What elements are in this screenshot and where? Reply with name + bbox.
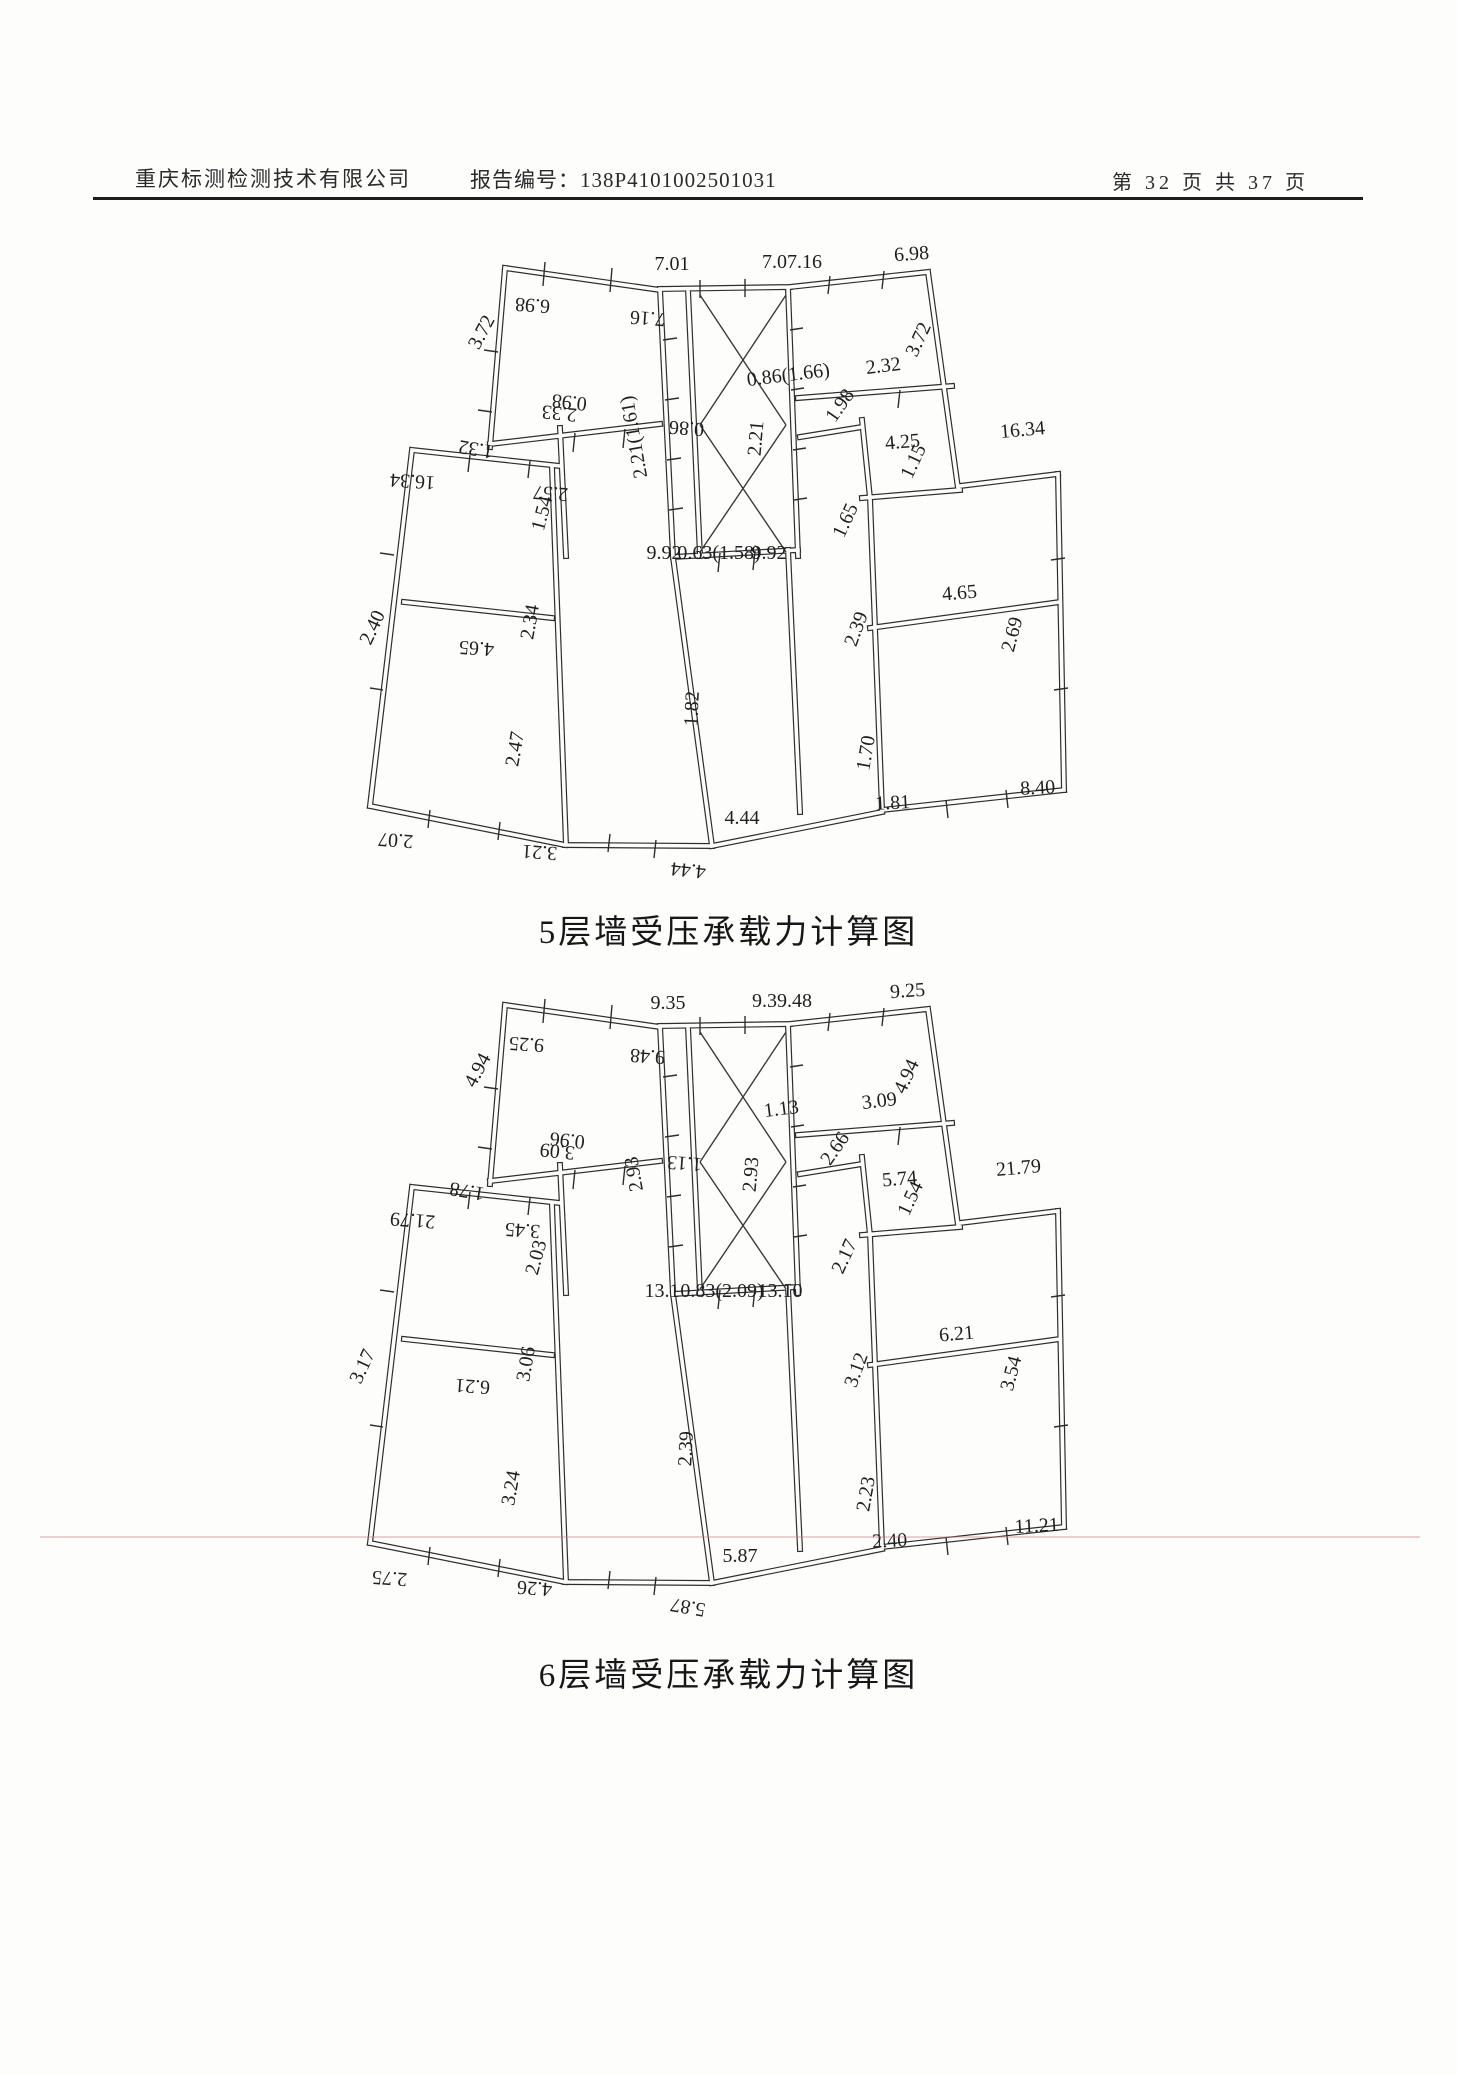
dim-label: 13.10	[758, 1280, 803, 1302]
dim-label: 7.16	[629, 306, 665, 330]
dim-label: 2.07	[377, 828, 413, 852]
x-brace-lines	[700, 295, 786, 552]
dim-label: 2.39	[674, 1431, 698, 1467]
dim-label: 9.25	[889, 979, 925, 1003]
dim-label: 5.87	[723, 1545, 758, 1567]
dim-label: 0.98	[551, 389, 588, 415]
dim-label: 3.45	[504, 1218, 540, 1242]
dim-label: 3.24	[497, 1469, 525, 1507]
dim-label: 6.21	[454, 1374, 490, 1398]
dim-label: 8.40	[1020, 776, 1056, 800]
dim-label: 1.65	[828, 500, 863, 541]
dim-label: 1.81	[875, 791, 911, 815]
dim-label: 3.54	[996, 1354, 1026, 1394]
dim-label: 2.69	[997, 615, 1027, 655]
figure-caption-5f: 5层墙受压承载力计算图	[0, 905, 1457, 953]
dim-label: 2.17	[827, 1236, 862, 1277]
dim-label: 1.70	[852, 734, 880, 772]
dim-label: 9.35	[651, 992, 686, 1014]
dim-label: 1.78	[448, 1177, 486, 1205]
dim-label: 9.48	[629, 1044, 665, 1068]
dim-label: 3.12	[840, 1350, 873, 1390]
floor-plans-canvas: 7.01 7.07.16 6.98 6.98 3.72 7.16 2.33 0.…	[0, 0, 1457, 2075]
dim-label: 16.34	[999, 417, 1046, 443]
dim-label: 1.82	[680, 691, 704, 727]
dim-label: 0.83(2.09)	[680, 1280, 763, 1302]
dim-label: 9.92	[752, 542, 787, 564]
dim-label: 9.92	[647, 542, 682, 564]
dim-label: 16.34	[389, 468, 435, 493]
dim-label: 0.86	[668, 416, 704, 440]
dim-label: 3.21	[521, 840, 557, 864]
figure-caption-6f: 6层墙受压承载力计算图	[0, 1648, 1457, 1696]
dim-label: 3.06	[512, 1345, 540, 1383]
dim-label: 2.47	[501, 730, 529, 768]
dim-label: 4.94	[889, 1056, 924, 1097]
dim-label: 9.39.48	[752, 990, 812, 1012]
dim-label: 7.07.16	[762, 251, 822, 273]
dim-label: 0.96	[549, 1127, 586, 1153]
dim-label: 4.44	[670, 857, 707, 883]
dim-label: 4.65	[941, 581, 978, 606]
dim-label: 4.26	[516, 1576, 552, 1600]
dim-label: 9.25	[508, 1032, 544, 1056]
dim-label: 2.40	[872, 1529, 908, 1553]
dim-label: 3.17	[345, 1346, 380, 1387]
dim-label: 4.65	[458, 636, 494, 660]
dim-label: 4.44	[725, 807, 760, 829]
document-page: 重庆标测检测技术有限公司 报告编号：138P4101002501031 第 32…	[0, 0, 1457, 2075]
dim-label: 2.03	[521, 1238, 551, 1278]
dim-label: 2.93	[739, 1156, 764, 1193]
dim-label: 13.1	[645, 1280, 680, 1302]
dim-label: 2.34	[516, 603, 544, 641]
dim-label: 1.13	[666, 1151, 702, 1175]
dim-label: 1.13	[763, 1096, 800, 1122]
dim-label: 0.63(1.58)	[677, 542, 760, 564]
dim-label: 5.87	[669, 1593, 707, 1621]
dim-label: 2.40	[355, 607, 390, 648]
dim-label: 7.01	[655, 253, 690, 275]
dim-label: 21.79	[995, 1155, 1042, 1181]
dim-label: 3.72	[901, 319, 936, 360]
dim-label: 0.86(1.66)	[746, 359, 831, 391]
dim-label: 21.79	[389, 1207, 435, 1232]
dim-label: 2.21(1.61)	[616, 394, 652, 480]
dim-label: 3.72	[464, 312, 500, 353]
dim-label: 2.75	[371, 1566, 407, 1590]
dim-label: 2.21	[744, 420, 769, 457]
dim-label: 2.32	[865, 353, 902, 379]
dim-label: 4.94	[460, 1050, 496, 1091]
dim-label: 3.09	[861, 1088, 898, 1114]
dim-label: 6.98	[514, 293, 550, 317]
dim-label: 2.39	[840, 609, 873, 649]
dim-label: 6.21	[938, 1322, 975, 1347]
dim-label: 2.23	[852, 1475, 880, 1513]
dim-label: 6.98	[893, 242, 929, 266]
dim-label: 11.21	[1014, 1514, 1059, 1538]
